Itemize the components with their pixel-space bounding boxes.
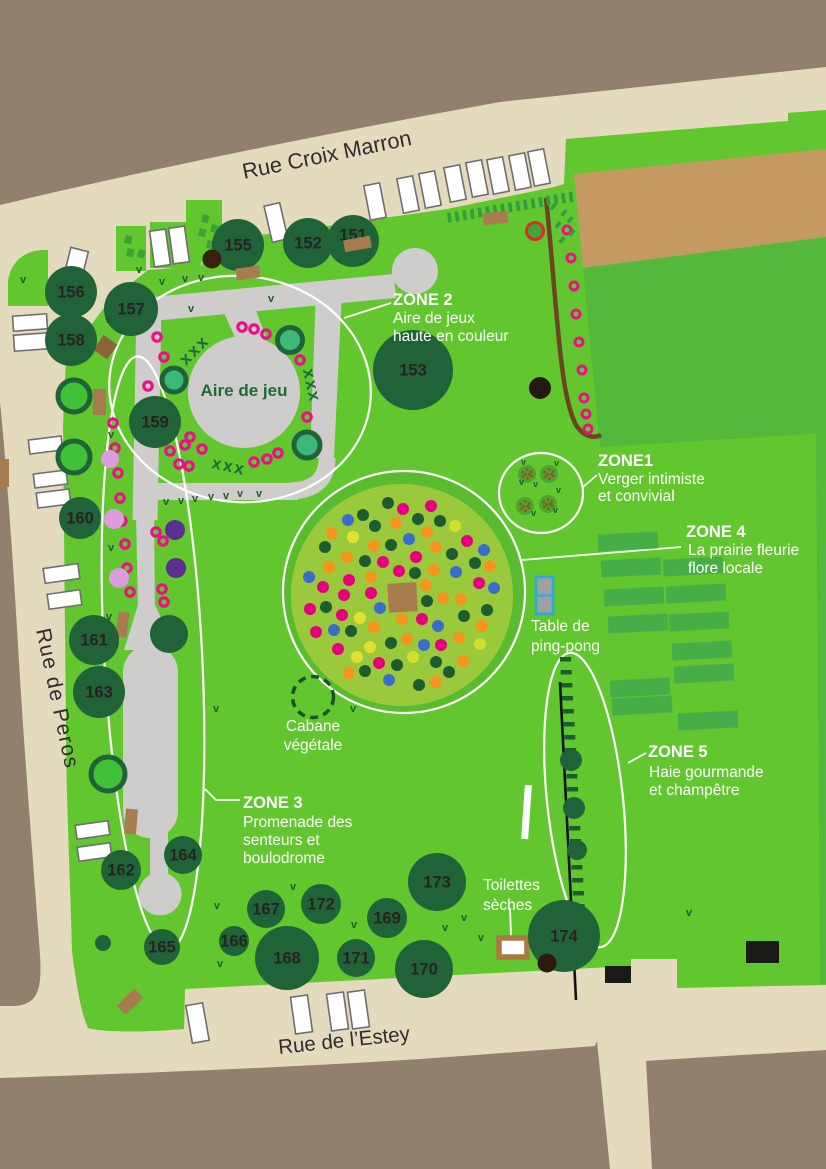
- svg-text:v: v: [106, 611, 113, 623]
- svg-text:161: 161: [80, 632, 108, 650]
- svg-text:v: v: [163, 496, 170, 508]
- svg-text:153: 153: [399, 362, 427, 380]
- svg-text:et champêtre: et champêtre: [649, 782, 739, 799]
- svg-text:v: v: [442, 922, 449, 934]
- svg-text:v: v: [554, 458, 559, 468]
- svg-text:Promenade des: Promenade des: [243, 814, 353, 831]
- svg-text:v: v: [208, 491, 215, 503]
- svg-text:170: 170: [410, 961, 438, 979]
- svg-text:157: 157: [117, 301, 145, 319]
- svg-text:v: v: [192, 493, 199, 505]
- svg-text:v: v: [237, 488, 244, 500]
- svg-text:haute en couleur: haute en couleur: [393, 328, 508, 345]
- svg-text:v: v: [351, 919, 358, 931]
- svg-text:166: 166: [220, 933, 248, 951]
- svg-text:169: 169: [373, 910, 401, 928]
- svg-text:végétale: végétale: [284, 737, 343, 754]
- svg-text:v: v: [478, 932, 485, 944]
- svg-text:v: v: [461, 912, 468, 924]
- svg-text:v: v: [686, 907, 693, 919]
- svg-text:159: 159: [141, 414, 169, 432]
- svg-text:Aire de jeu: Aire de jeu: [201, 381, 288, 400]
- svg-text:152: 152: [294, 235, 322, 253]
- svg-text:171: 171: [342, 950, 370, 968]
- svg-text:v: v: [120, 868, 127, 880]
- svg-text:v: v: [519, 477, 524, 487]
- svg-text:v: v: [20, 274, 27, 286]
- svg-text:Cabane: Cabane: [286, 718, 340, 735]
- svg-text:senteurs et: senteurs et: [243, 832, 320, 849]
- svg-text:v: v: [521, 457, 526, 467]
- svg-text:v: v: [188, 303, 195, 315]
- svg-text:168: 168: [273, 950, 301, 968]
- svg-text:v: v: [268, 293, 275, 305]
- svg-text:155: 155: [224, 237, 252, 255]
- svg-text:156: 156: [57, 284, 85, 302]
- svg-text:163: 163: [85, 684, 113, 702]
- svg-text:v: v: [213, 703, 220, 715]
- svg-text:v: v: [531, 508, 536, 518]
- svg-text:v: v: [108, 542, 115, 554]
- svg-text:ZONE 2: ZONE 2: [393, 291, 453, 309]
- svg-text:v: v: [108, 429, 115, 441]
- svg-text:flore locale: flore locale: [688, 560, 763, 577]
- svg-text:158: 158: [57, 332, 85, 350]
- svg-text:v: v: [350, 703, 357, 715]
- svg-text:La prairie fleurie: La prairie fleurie: [688, 542, 799, 559]
- svg-text:ZONE 3: ZONE 3: [243, 794, 303, 812]
- svg-text:Toilettes: Toilettes: [483, 877, 540, 894]
- svg-text:v: v: [533, 479, 538, 489]
- svg-text:165: 165: [148, 939, 176, 957]
- svg-text:boulodrome: boulodrome: [243, 850, 325, 867]
- svg-text:v: v: [182, 273, 189, 285]
- svg-text:174: 174: [550, 928, 578, 946]
- svg-text:Haie gourmande: Haie gourmande: [649, 764, 764, 781]
- svg-text:172: 172: [307, 896, 335, 914]
- svg-text:v: v: [159, 276, 166, 288]
- svg-text:et convivial: et convivial: [598, 488, 675, 505]
- svg-text:v: v: [290, 881, 297, 893]
- svg-text:Table de: Table de: [531, 618, 590, 635]
- svg-text:Aire de jeux: Aire de jeux: [393, 310, 475, 327]
- svg-text:167: 167: [252, 901, 280, 919]
- svg-text:sèches: sèches: [483, 897, 532, 914]
- svg-text:v: v: [256, 488, 263, 500]
- svg-text:v: v: [178, 495, 185, 507]
- svg-text:v: v: [223, 490, 230, 502]
- svg-text:v: v: [214, 900, 221, 912]
- svg-text:v: v: [556, 485, 561, 495]
- svg-text:164: 164: [169, 847, 197, 865]
- svg-text:ZONE 5: ZONE 5: [648, 743, 708, 761]
- svg-text:173: 173: [423, 874, 451, 892]
- svg-text:ZONE 4: ZONE 4: [686, 523, 746, 541]
- svg-text:ZONE1: ZONE1: [598, 452, 653, 470]
- svg-text:v: v: [105, 314, 112, 326]
- svg-text:160: 160: [66, 510, 94, 528]
- svg-text:Verger intimiste: Verger intimiste: [598, 471, 705, 488]
- svg-text:v: v: [217, 958, 224, 970]
- svg-text:v: v: [136, 264, 143, 276]
- svg-text:v: v: [198, 272, 205, 284]
- svg-text:ping-pong: ping-pong: [531, 638, 600, 655]
- svg-text:v: v: [553, 505, 558, 515]
